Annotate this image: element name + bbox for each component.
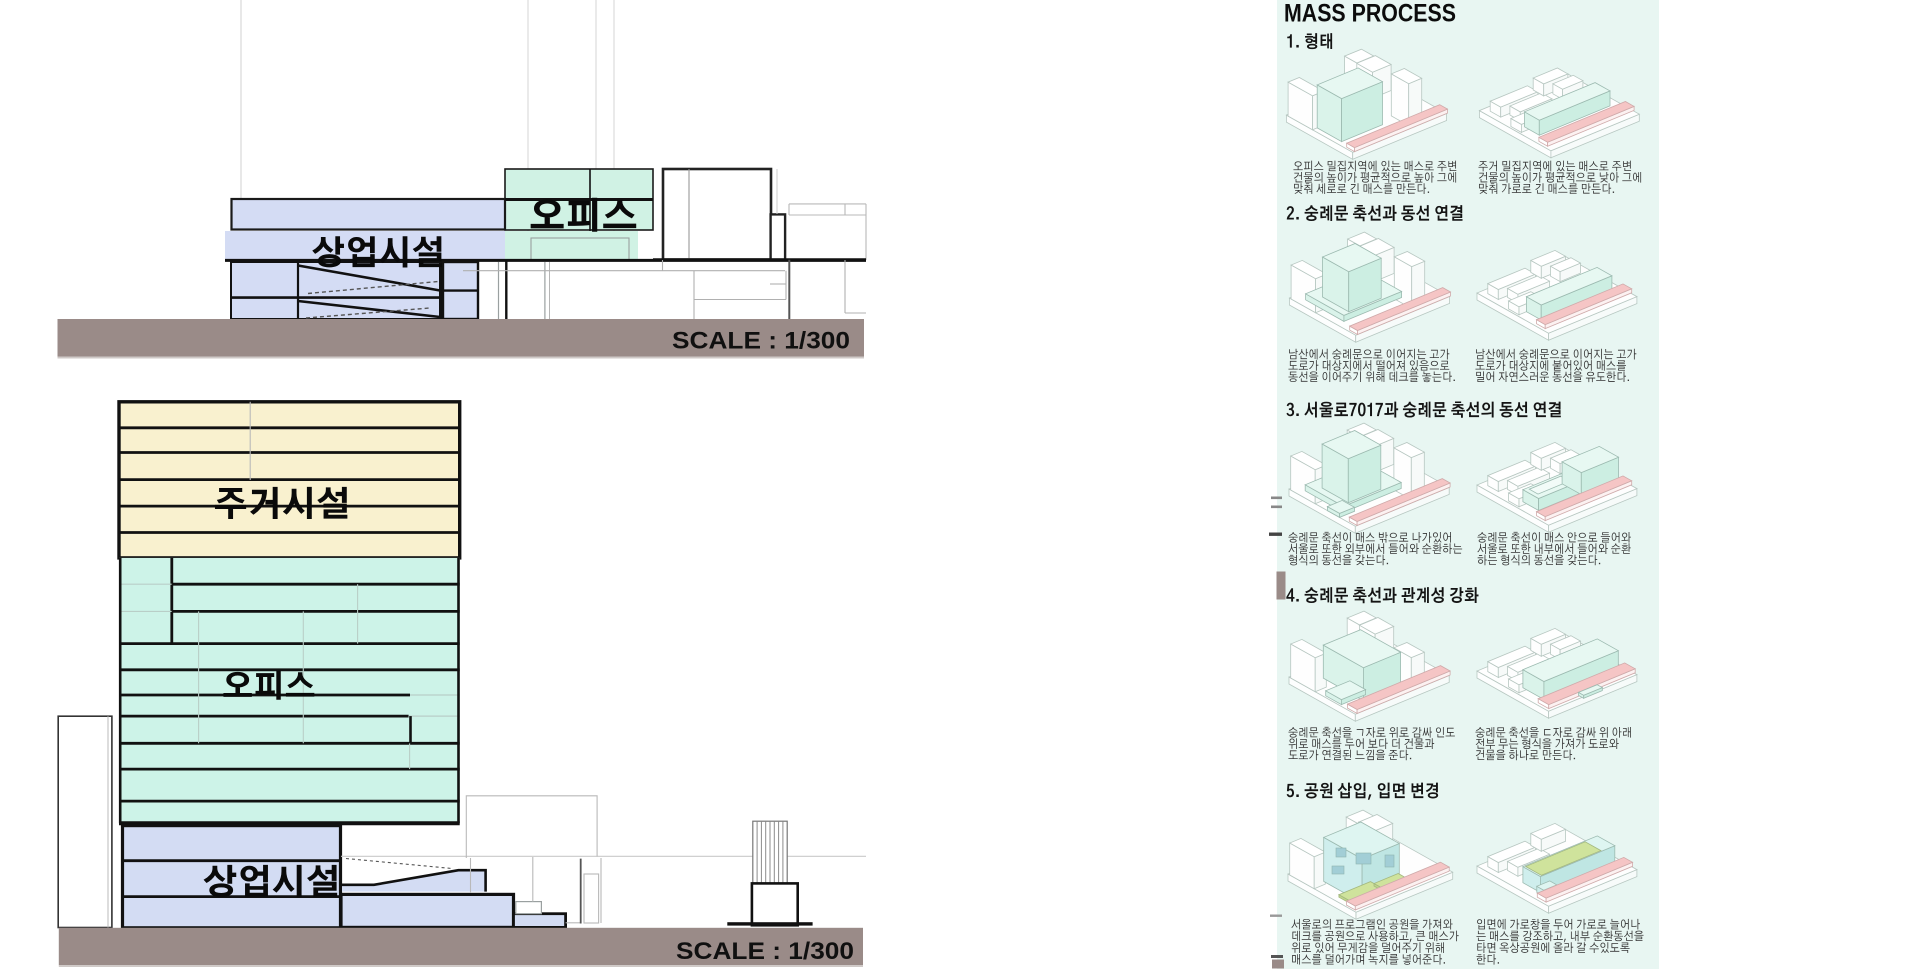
svg-text:SCALE : 1/300: SCALE : 1/300 (672, 328, 850, 355)
svg-text:SCALE : 1/300: SCALE : 1/300 (676, 938, 854, 965)
svg-text:MASS PROCESS: MASS PROCESS (1284, 0, 1456, 28)
